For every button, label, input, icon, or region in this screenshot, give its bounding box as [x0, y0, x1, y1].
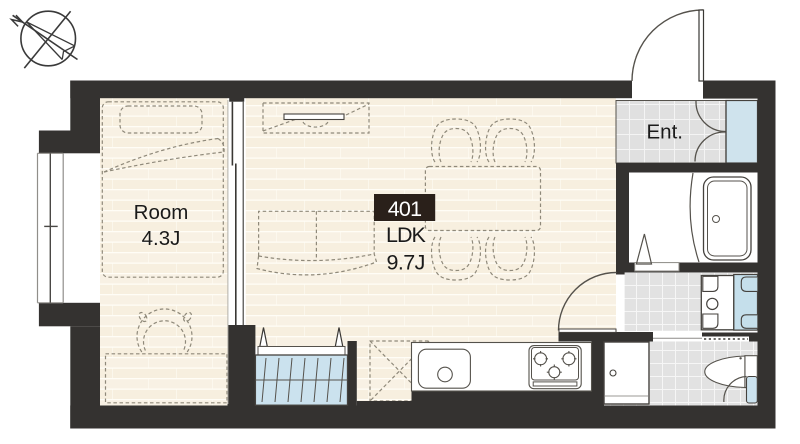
svg-text:4.3J: 4.3J: [142, 227, 181, 250]
svg-text:9.7J: 9.7J: [387, 251, 425, 275]
svg-text:Room: Room: [134, 201, 189, 224]
svg-text:401: 401: [388, 197, 421, 221]
svg-text:Ent.: Ent.: [647, 121, 683, 144]
svg-text:LDK: LDK: [386, 223, 426, 247]
